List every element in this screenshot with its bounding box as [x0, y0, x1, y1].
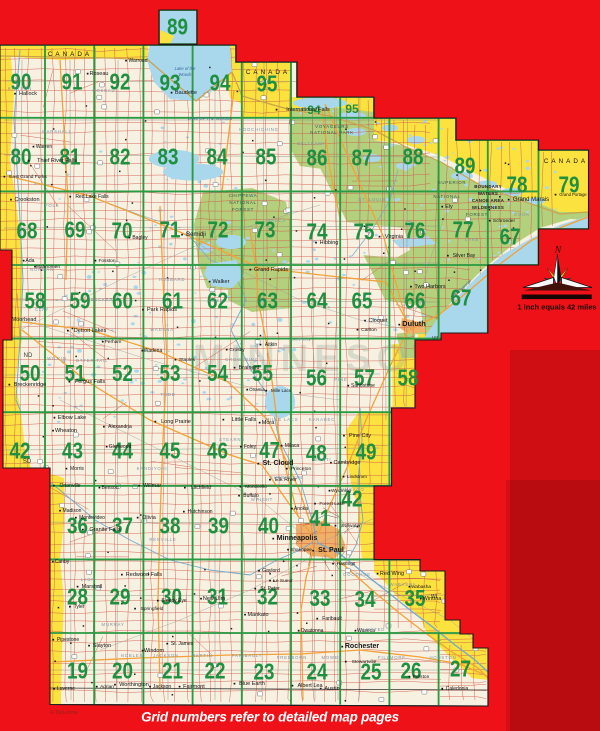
svg-text:Sleepy Eye: Sleepy Eye: [161, 598, 187, 604]
svg-text:66: 66: [405, 287, 426, 313]
svg-text:ND: ND: [24, 353, 33, 359]
svg-text:HUBBARD: HUBBARD: [159, 277, 186, 282]
svg-text:Bemidji: Bemidji: [186, 232, 206, 238]
svg-text:Le Sueur: Le Sueur: [273, 578, 293, 584]
svg-text:Monticello: Monticello: [245, 484, 267, 490]
svg-text:Alexandria: Alexandria: [108, 424, 132, 430]
svg-text:Breckenridge: Breckenridge: [14, 382, 46, 388]
svg-text:Canby: Canby: [55, 559, 70, 565]
svg-text:70: 70: [112, 217, 133, 243]
svg-text:Little Falls: Little Falls: [232, 417, 257, 423]
svg-text:89: 89: [455, 152, 476, 178]
svg-text:Hallock: Hallock: [19, 91, 37, 97]
svg-text:Anoka: Anoka: [294, 506, 308, 512]
svg-text:63: 63: [257, 287, 278, 313]
svg-text:SHERBURNE: SHERBURNE: [270, 475, 304, 480]
svg-text:53: 53: [160, 360, 181, 386]
svg-text:Faribault: Faribault: [322, 616, 342, 622]
svg-text:FILLMORE: FILLMORE: [378, 655, 406, 660]
svg-text:MILLE LACS: MILLE LACS: [266, 417, 299, 422]
svg-text:WRIGHT: WRIGHT: [251, 497, 273, 502]
svg-text:POLK: POLK: [45, 203, 60, 208]
svg-text:78: 78: [507, 171, 528, 197]
svg-text:VOYAGEURS: VOYAGEURS: [315, 124, 349, 129]
svg-text:Granite Falls: Granite Falls: [89, 527, 120, 533]
svg-text:Woods: Woods: [178, 72, 192, 77]
svg-text:Austin: Austin: [324, 686, 339, 692]
svg-text:52: 52: [112, 360, 133, 386]
svg-text:Grand Rapids: Grand Rapids: [254, 267, 288, 273]
svg-text:KANABEC: KANABEC: [309, 417, 335, 422]
svg-text:91: 91: [62, 68, 83, 94]
svg-text:Cambridge: Cambridge: [334, 460, 361, 466]
svg-text:44: 44: [112, 437, 133, 463]
svg-text:Walker: Walker: [213, 279, 230, 285]
svg-text:86: 86: [307, 144, 328, 170]
svg-text:87: 87: [352, 144, 373, 170]
svg-text:FARIBAULT: FARIBAULT: [232, 653, 262, 658]
svg-text:Milaca: Milaca: [285, 443, 300, 449]
svg-text:Hibbing: Hibbing: [320, 240, 339, 246]
svg-text:BELTRAMI: BELTRAMI: [297, 141, 325, 146]
svg-text:OLMSTED: OLMSTED: [359, 627, 385, 632]
svg-text:Sandstone: Sandstone: [351, 383, 375, 389]
svg-text:CANADA: CANADA: [246, 69, 290, 76]
svg-text:Adrian: Adrian: [100, 684, 114, 690]
svg-text:Pine City: Pine City: [349, 433, 371, 439]
svg-text:75: 75: [354, 218, 375, 244]
svg-text:Morris: Morris: [70, 466, 84, 472]
svg-text:Ada: Ada: [26, 258, 35, 264]
svg-text:JACKSON: JACKSON: [153, 653, 179, 658]
svg-text:Fergus Falls: Fergus Falls: [75, 379, 106, 385]
svg-text:Two Harbors: Two Harbors: [414, 284, 445, 290]
svg-text:24: 24: [307, 658, 328, 684]
svg-text:Ely: Ely: [445, 204, 453, 210]
svg-text:Stillwater: Stillwater: [341, 523, 361, 529]
svg-text:WILKIN: WILKIN: [47, 356, 67, 361]
svg-text:Schroeder: Schroeder: [493, 218, 516, 224]
svg-text:69: 69: [65, 216, 86, 242]
svg-text:83: 83: [158, 143, 179, 169]
svg-text:Foley: Foley: [244, 444, 257, 450]
svg-text:RENVILLE: RENVILLE: [149, 537, 176, 542]
svg-text:New Ulm: New Ulm: [203, 596, 226, 602]
svg-text:Grid numbers refer to detailed: Grid numbers refer to detailed map pages: [141, 710, 399, 725]
svg-text:GOODHUE: GOODHUE: [343, 572, 371, 577]
svg-text:89: 89: [167, 13, 188, 39]
svg-text:Madison: Madison: [63, 508, 82, 514]
svg-text:72: 72: [208, 216, 229, 242]
svg-text:Fosston: Fosston: [98, 258, 115, 264]
svg-text:1 inch equals 42 miles: 1 inch equals 42 miles: [517, 303, 596, 312]
svg-text:95: 95: [345, 102, 359, 116]
svg-text:Elbow Lake: Elbow Lake: [58, 415, 86, 421]
svg-text:Lake of the: Lake of the: [175, 66, 196, 71]
svg-text:NATIONAL PARK: NATIONAL PARK: [310, 130, 353, 135]
svg-text:45: 45: [160, 437, 181, 463]
svg-text:MARSHALL: MARSHALL: [42, 129, 72, 134]
svg-text:Preston: Preston: [413, 674, 430, 680]
svg-text:Mankato: Mankato: [247, 612, 268, 618]
svg-text:68: 68: [17, 217, 38, 243]
svg-text:AITKIN: AITKIN: [293, 337, 312, 342]
svg-text:© DeLorme: © DeLorme: [50, 709, 78, 716]
svg-text:CANADA: CANADA: [48, 51, 92, 58]
svg-text:38: 38: [160, 512, 181, 538]
svg-text:N: N: [554, 245, 563, 256]
svg-text:Aitkin: Aitkin: [265, 342, 277, 348]
svg-text:Park Rapids: Park Rapids: [147, 307, 177, 313]
svg-text:43: 43: [62, 437, 83, 463]
svg-text:Warren: Warren: [36, 144, 52, 150]
svg-text:Luverne: Luverne: [57, 686, 75, 692]
svg-text:Grand Marais: Grand Marais: [513, 197, 549, 203]
svg-text:WILDERNESS: WILDERNESS: [472, 205, 504, 210]
svg-text:BECKER: BECKER: [91, 297, 113, 302]
svg-text:Onamia: Onamia: [249, 387, 265, 392]
svg-text:22: 22: [205, 657, 226, 683]
svg-text:CANADA: CANADA: [544, 158, 588, 165]
svg-text:Hutchinson: Hutchinson: [187, 509, 212, 515]
svg-text:Fairmont: Fairmont: [183, 684, 205, 690]
svg-text:CHIPPEWA: CHIPPEWA: [229, 193, 258, 198]
svg-text:Litchfield: Litchfield: [191, 485, 211, 491]
svg-text:54: 54: [207, 360, 228, 386]
svg-text:21: 21: [162, 657, 183, 683]
svg-text:PINE: PINE: [334, 377, 347, 382]
svg-text:SUPERIOR: SUPERIOR: [438, 180, 467, 185]
svg-text:LAKE: LAKE: [465, 237, 479, 242]
svg-text:20: 20: [112, 657, 133, 683]
svg-text:Tyler: Tyler: [74, 604, 85, 610]
svg-text:International Falls: International Falls: [286, 107, 330, 113]
svg-text:19: 19: [67, 657, 88, 683]
svg-text:Wadena: Wadena: [144, 348, 163, 354]
svg-text:Jackson: Jackson: [153, 684, 172, 690]
svg-text:Cloquet: Cloquet: [369, 318, 388, 324]
svg-text:Brainerd: Brainerd: [239, 365, 260, 371]
svg-text:60: 60: [112, 287, 133, 313]
svg-text:Red Wing: Red Wing: [380, 571, 404, 577]
svg-text:ITASCA: ITASCA: [266, 218, 286, 223]
svg-text:Perham: Perham: [105, 339, 122, 345]
svg-text:Red Lake Falls: Red Lake Falls: [75, 194, 109, 200]
svg-text:Ortonville: Ortonville: [59, 483, 80, 489]
svg-text:CLAY: CLAY: [35, 307, 49, 312]
svg-text:St. Peter: St. Peter: [260, 586, 280, 592]
svg-text:Crookston: Crookston: [14, 197, 39, 203]
svg-text:NORMAN: NORMAN: [30, 267, 54, 272]
svg-text:85: 85: [256, 143, 277, 169]
svg-text:Olivia: Olivia: [142, 515, 157, 521]
svg-text:Crosby: Crosby: [229, 347, 245, 353]
svg-text:71: 71: [160, 216, 181, 242]
svg-text:FOREST: FOREST: [466, 212, 488, 217]
svg-text:Thief River Falls: Thief River Falls: [37, 158, 77, 164]
svg-text:Hastings: Hastings: [337, 561, 356, 567]
svg-text:Pipestone: Pipestone: [57, 637, 79, 643]
svg-text:LYON: LYON: [81, 577, 96, 582]
svg-text:TODD: TODD: [160, 392, 175, 397]
svg-text:CROW WING: CROW WING: [225, 357, 259, 362]
svg-text:ROSEAU: ROSEAU: [93, 88, 116, 93]
svg-text:Glenwood: Glenwood: [109, 444, 132, 450]
svg-text:Slayton: Slayton: [93, 643, 111, 649]
svg-text:Forest Lake: Forest Lake: [319, 501, 345, 507]
svg-text:SD: SD: [23, 459, 32, 465]
svg-text:33: 33: [310, 585, 331, 611]
svg-text:FOREST: FOREST: [232, 207, 254, 212]
svg-text:CHISAGO: CHISAGO: [339, 487, 364, 492]
svg-text:Bagley: Bagley: [132, 235, 148, 241]
svg-text:Carlton: Carlton: [361, 327, 377, 333]
svg-text:81: 81: [60, 143, 81, 169]
svg-text:58: 58: [398, 364, 419, 390]
svg-text:Springfield: Springfield: [141, 606, 164, 612]
svg-text:STEARNS: STEARNS: [219, 437, 245, 442]
svg-text:30: 30: [161, 583, 182, 609]
svg-text:MURRAY: MURRAY: [101, 622, 124, 627]
svg-text:FREEBORN: FREEBORN: [277, 655, 307, 660]
svg-text:St. Cloud: St. Cloud: [263, 460, 294, 467]
svg-text:37: 37: [112, 512, 133, 538]
svg-text:NATIONAL: NATIONAL: [229, 200, 256, 205]
svg-text:82: 82: [110, 143, 131, 169]
svg-text:LAKE OF THE WOODS: LAKE OF THE WOODS: [188, 116, 233, 121]
svg-text:WABASHA: WABASHA: [390, 582, 417, 587]
svg-text:East Grand Forks: East Grand Forks: [9, 174, 47, 180]
svg-text:39: 39: [208, 512, 229, 538]
svg-text:Detroit Lakes: Detroit Lakes: [74, 328, 107, 334]
svg-text:59: 59: [70, 287, 91, 313]
svg-text:84: 84: [207, 143, 228, 169]
svg-text:34: 34: [355, 586, 376, 612]
svg-text:BOUNDARY: BOUNDARY: [474, 184, 502, 189]
svg-text:Long Prairie: Long Prairie: [161, 419, 191, 425]
svg-text:KOOCHICHING: KOOCHICHING: [239, 127, 279, 132]
svg-text:Caledonia: Caledonia: [446, 686, 469, 692]
svg-text:Minneapolis: Minneapolis: [277, 535, 318, 542]
svg-text:Gaylord: Gaylord: [262, 568, 280, 574]
svg-text:Stewartville: Stewartville: [352, 659, 377, 665]
svg-text:67: 67: [500, 223, 521, 249]
svg-text:Roseau: Roseau: [90, 71, 109, 77]
svg-text:Owatonna: Owatonna: [301, 628, 324, 634]
svg-text:Grand Portage: Grand Portage: [559, 192, 587, 197]
svg-text:Silver Bay: Silver Bay: [453, 253, 476, 259]
svg-text:Mille Lacs: Mille Lacs: [271, 388, 292, 393]
svg-text:Willmar: Willmar: [143, 483, 161, 489]
svg-text:ST. LOUIS: ST. LOUIS: [358, 197, 386, 202]
svg-text:Wheaton: Wheaton: [55, 428, 77, 434]
svg-text:MOWER: MOWER: [322, 655, 343, 660]
svg-text:KANDIYOHI: KANDIYOHI: [137, 466, 168, 471]
svg-text:Montevideo: Montevideo: [79, 515, 105, 521]
svg-text:Princeton: Princeton: [291, 466, 312, 472]
svg-text:64: 64: [307, 287, 328, 313]
svg-text:Moorhead: Moorhead: [12, 317, 37, 323]
svg-text:NATIONAL: NATIONAL: [433, 194, 460, 199]
svg-text:Staples: Staples: [179, 357, 196, 363]
svg-text:CASS: CASS: [209, 298, 224, 303]
svg-text:Shakopee: Shakopee: [290, 547, 312, 553]
svg-text:76: 76: [405, 217, 426, 243]
svg-text:56: 56: [306, 364, 327, 390]
svg-text:55: 55: [252, 360, 273, 386]
svg-text:Warroad: Warroad: [129, 58, 148, 64]
svg-text:65: 65: [352, 287, 373, 313]
svg-text:St. Paul: St. Paul: [318, 547, 344, 554]
svg-text:WATERS: WATERS: [478, 191, 498, 196]
svg-text:Blue Earth: Blue Earth: [239, 681, 265, 687]
svg-text:HOUSTON: HOUSTON: [429, 655, 456, 660]
svg-text:Virginia: Virginia: [385, 234, 404, 240]
svg-text:Benson: Benson: [102, 485, 119, 491]
svg-text:ISANTI: ISANTI: [313, 457, 332, 462]
svg-text:94: 94: [210, 69, 231, 95]
svg-text:Duluth: Duluth: [402, 319, 426, 328]
svg-text:29: 29: [110, 583, 131, 609]
svg-text:Redwood Falls: Redwood Falls: [126, 572, 163, 578]
svg-text:Rochester: Rochester: [345, 643, 380, 650]
svg-text:MARTIN: MARTIN: [191, 653, 212, 658]
svg-text:Albert Lea: Albert Lea: [297, 683, 323, 689]
svg-text:NOBLES: NOBLES: [121, 653, 143, 658]
svg-text:St. James: St. James: [171, 641, 194, 647]
svg-text:WADENA: WADENA: [150, 327, 174, 332]
svg-text:88: 88: [403, 143, 424, 169]
svg-text:CANOE AREA: CANOE AREA: [472, 198, 505, 203]
svg-text:80: 80: [11, 143, 32, 169]
svg-text:WI: WI: [431, 594, 437, 600]
svg-text:COOK: COOK: [514, 212, 530, 217]
svg-text:Worthington: Worthington: [119, 682, 149, 688]
svg-text:41: 41: [310, 505, 331, 531]
svg-text:Marshall: Marshall: [82, 584, 103, 590]
svg-text:Baudette: Baudette: [175, 90, 197, 96]
svg-text:Lindstrom: Lindstrom: [347, 474, 367, 479]
svg-text:OTTER TAIL: OTTER TAIL: [76, 358, 108, 363]
svg-text:KITTSON: KITTSON: [8, 86, 32, 91]
